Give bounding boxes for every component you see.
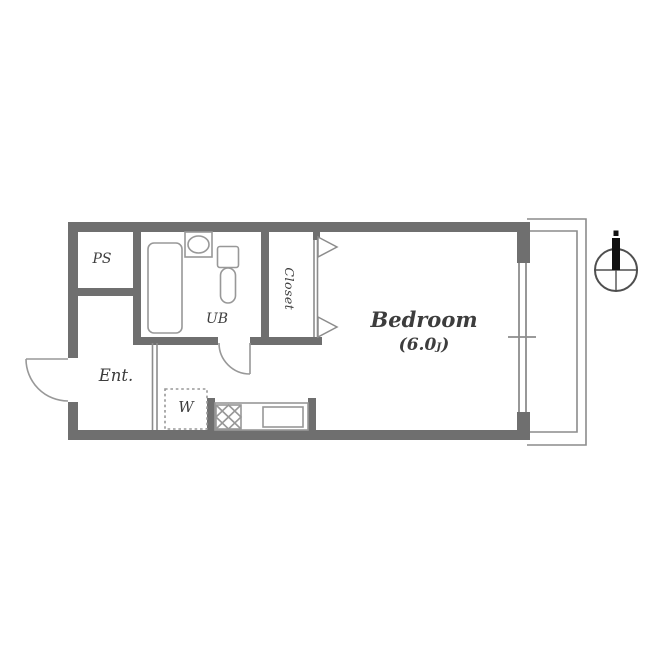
wall-top [68,222,530,232]
entrance-door-swing-arc [26,359,68,401]
room-label-ps: PS [72,252,132,267]
wall-left-lower [68,402,78,440]
north-compass-icon [594,231,638,292]
wall-ps-bottom [68,288,141,296]
wall-closet-bottom [250,337,322,345]
size-close: ) [441,335,449,355]
size-open: (6.0 [399,335,437,355]
wall-ps-ub [133,232,141,343]
balcony [527,219,586,445]
bathroom-door [219,343,250,374]
wall-ub-closet [261,232,269,343]
wall-right-top-stub [517,222,530,263]
entrance-door [26,359,68,401]
room-label-bedroom: Bedroom [334,308,514,331]
wall-kitchen-right-stub [308,398,316,430]
bathtub [148,243,182,333]
closet-door-arrow-top [318,237,337,257]
floor-plan-drawing [0,0,665,665]
kitchen-sink [263,407,303,427]
room-label-closet: Closet [282,259,296,319]
wall-bottom [68,430,530,440]
entrance-step-line [153,343,158,430]
room-size-bedroom: (6.0J) [334,336,514,355]
kitchen [215,403,308,430]
compass-north-tip [614,231,619,237]
bathroom-door-swing-arc [219,343,250,374]
compass-north-needle [612,238,620,270]
toilet-bowl [221,268,236,303]
wall-ub-bottom-left [133,337,218,345]
balcony-inner-rail [527,231,577,432]
floor-plan: PS UB Closet Bedroom (6.0J) Ent. W [0,0,665,665]
room-label-entrance: Ent. [86,367,146,385]
wash-basin [188,236,209,253]
room-label-washer: W [156,399,216,416]
room-label-ub: UB [187,312,247,327]
toilet-tank [218,247,239,268]
wall-right-bottom-stub [517,412,530,440]
